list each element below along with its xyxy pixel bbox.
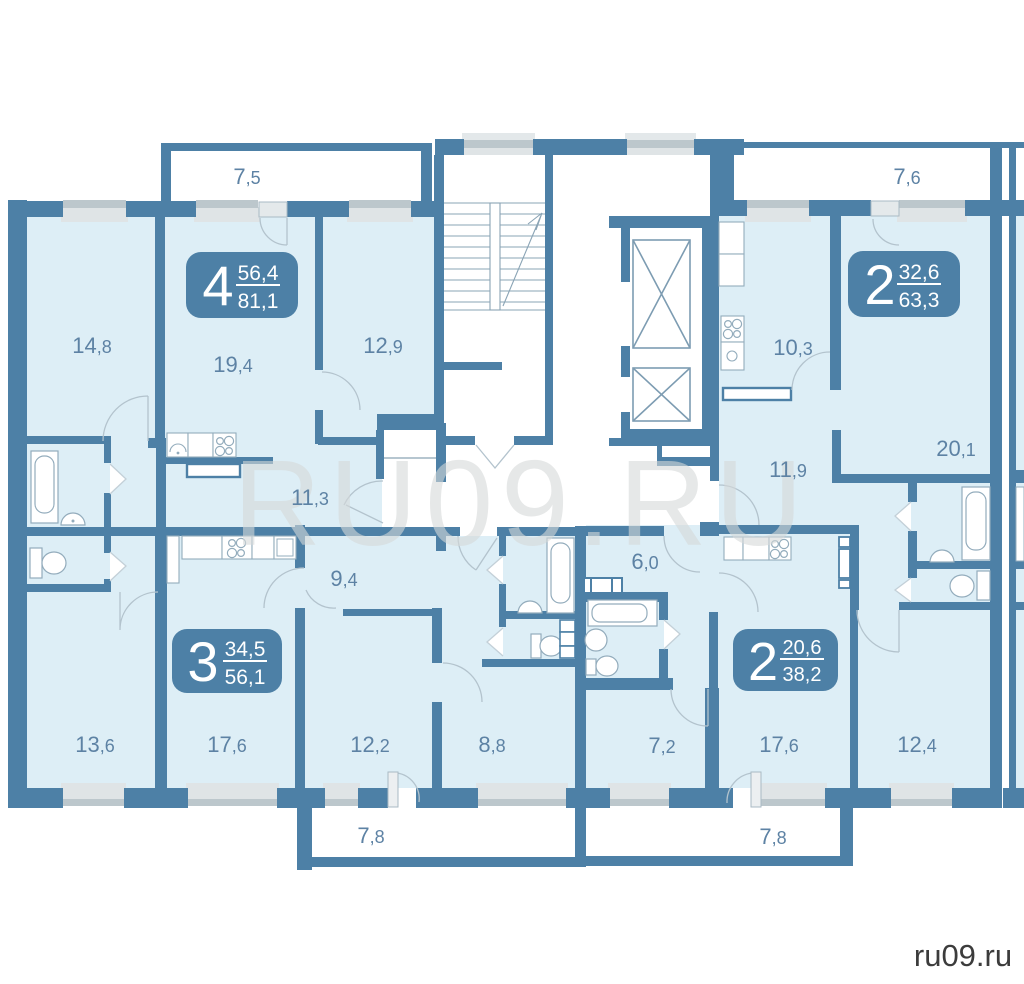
- svg-text:12,2: 12,2: [350, 732, 390, 757]
- svg-text:10,3: 10,3: [773, 335, 813, 360]
- svg-text:63,3: 63,3: [899, 289, 940, 312]
- svg-text:34,5: 34,5: [225, 638, 266, 661]
- svg-text:9,4: 9,4: [330, 566, 357, 591]
- svg-text:17,6: 17,6: [207, 732, 247, 757]
- svg-text:12,9: 12,9: [363, 333, 403, 358]
- svg-text:3: 3: [187, 630, 218, 693]
- svg-text:4: 4: [202, 254, 233, 317]
- svg-text:56,1: 56,1: [225, 666, 266, 689]
- svg-text:38,2: 38,2: [783, 664, 822, 686]
- svg-text:2: 2: [864, 253, 895, 316]
- svg-text:7,6: 7,6: [893, 164, 920, 189]
- svg-text:6,0: 6,0: [631, 549, 658, 574]
- svg-text:17,6: 17,6: [759, 732, 799, 757]
- svg-text:11,9: 11,9: [769, 457, 807, 482]
- svg-text:8,8: 8,8: [478, 732, 505, 757]
- svg-text:13,6: 13,6: [75, 732, 115, 757]
- svg-text:12,4: 12,4: [897, 732, 937, 757]
- svg-text:7,2: 7,2: [648, 733, 675, 758]
- svg-text:32,6: 32,6: [899, 261, 940, 284]
- svg-text:20,6: 20,6: [783, 637, 822, 659]
- svg-text:19,4: 19,4: [213, 352, 253, 377]
- svg-text:56,4: 56,4: [238, 262, 279, 285]
- svg-text:20,1: 20,1: [936, 436, 976, 461]
- svg-text:11,3: 11,3: [291, 485, 329, 510]
- svg-text:7,8: 7,8: [759, 824, 786, 849]
- svg-text:2: 2: [748, 632, 778, 692]
- svg-text:7,5: 7,5: [233, 164, 260, 189]
- svg-text:14,8: 14,8: [72, 333, 112, 358]
- svg-text:7,8: 7,8: [357, 823, 384, 848]
- svg-text:ru09.ru: ru09.ru: [914, 938, 1012, 973]
- svg-text:81,1: 81,1: [238, 290, 279, 313]
